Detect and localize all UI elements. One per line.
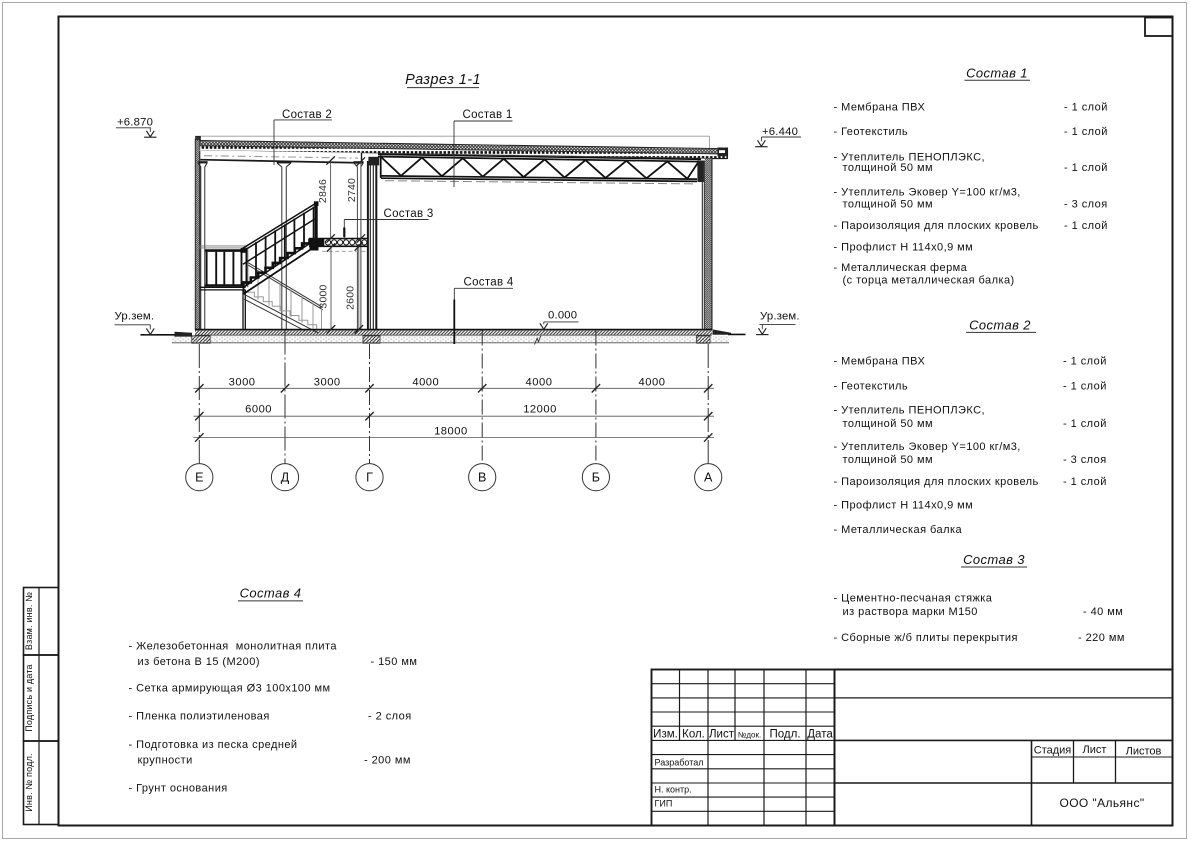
svg-text:(с торца металлическая балка): (с торца металлическая балка): [843, 275, 1015, 287]
svg-text:№док.: №док.: [738, 731, 761, 740]
svg-text:- Металлическая балка: - Металлическая балка: [834, 524, 963, 536]
svg-text:0.000: 0.000: [548, 310, 577, 322]
svg-text:3000: 3000: [317, 284, 329, 308]
svg-text:Инв. № подл.: Инв. № подл.: [24, 753, 34, 811]
svg-text:- Грунт основания: - Грунт основания: [129, 783, 228, 795]
svg-text:Ур.зем.: Ур.зем.: [760, 311, 800, 323]
svg-text:Изм.: Изм.: [653, 729, 678, 741]
svg-text:12000: 12000: [523, 404, 557, 416]
svg-text:Лист: Лист: [709, 729, 735, 741]
svg-text:Состав 4: Состав 4: [240, 586, 302, 601]
svg-text:18000: 18000: [434, 426, 468, 438]
svg-text:- 3 слоя: - 3 слоя: [1064, 198, 1108, 210]
svg-text:- Сборные ж/б плиты перекрытия: - Сборные ж/б плиты перекрытия: [834, 632, 1018, 644]
svg-text:Стадия: Стадия: [1034, 745, 1072, 757]
svg-text:- Утеплитель Эковер Y=100 кг/м: - Утеплитель Эковер Y=100 кг/м3,: [834, 187, 1021, 199]
svg-text:- 1 слой: - 1 слой: [1064, 220, 1108, 232]
svg-text:- 1 слой: - 1 слой: [1063, 418, 1107, 430]
svg-text:Состав 1: Состав 1: [463, 109, 513, 121]
svg-text:Состав 2: Состав 2: [969, 318, 1031, 333]
svg-text:Кол.: Кол.: [682, 729, 705, 741]
svg-text:В: В: [478, 471, 486, 485]
svg-text:+6.440: +6.440: [762, 126, 798, 138]
svg-text:Дата: Дата: [807, 729, 833, 741]
svg-text:Н. контр.: Н. контр.: [655, 785, 692, 795]
svg-text:- 1 слой: - 1 слой: [1064, 162, 1108, 174]
svg-text:- Сетка армирующая Ø3 100х100: - Сетка армирующая Ø3 100х100 мм: [129, 683, 331, 695]
svg-text:- 1 слой: - 1 слой: [1063, 476, 1107, 488]
svg-text:Разрез 1-1: Разрез 1-1: [405, 72, 481, 88]
svg-text:Ур.зем.: Ур.зем.: [115, 311, 155, 323]
svg-text:+6.870: +6.870: [117, 117, 153, 129]
svg-text:- Утеплитель Эковер Y=100 кг/м: - Утеплитель Эковер Y=100 кг/м3,: [834, 441, 1021, 453]
svg-text:3000: 3000: [314, 376, 341, 388]
svg-text:Взам. инв. №: Взам. инв. №: [24, 592, 34, 650]
svg-text:- 2 слоя: - 2 слоя: [368, 711, 412, 723]
svg-text:- 3 слоя: - 3 слоя: [1063, 454, 1107, 466]
svg-text:- Геотекстиль: - Геотекстиль: [834, 126, 909, 138]
svg-text:- Утеплитель ПЕНОПЛЭКС,: - Утеплитель ПЕНОПЛЭКС,: [834, 405, 986, 417]
svg-text:Подпись и дата: Подпись и дата: [24, 664, 34, 732]
svg-text:2846: 2846: [317, 179, 329, 203]
svg-text:Листов: Листов: [1126, 746, 1162, 758]
svg-text:- Железобетонная монолитная п: - Железобетонная монолитная плита: [129, 641, 338, 653]
svg-text:Состав 3: Состав 3: [384, 208, 434, 220]
svg-text:ООО "Альянс": ООО "Альянс": [1059, 796, 1144, 810]
svg-text:из раствора марки М150: из раствора марки М150: [843, 606, 978, 618]
svg-text:- 1 слой: - 1 слой: [1063, 381, 1107, 393]
svg-text:- Пленка полиэтиленовая: - Пленка полиэтиленовая: [129, 711, 270, 723]
svg-text:4000: 4000: [526, 376, 553, 388]
svg-text:толщиной 50 мм: толщиной 50 мм: [843, 162, 934, 174]
svg-text:Состав 4: Состав 4: [464, 276, 514, 288]
svg-text:толщиной 50 мм: толщиной 50 мм: [843, 418, 934, 430]
svg-text:- 220 мм: - 220 мм: [1078, 632, 1125, 644]
svg-text:из бетона В 15 (М200): из бетона В 15 (М200): [138, 656, 260, 668]
svg-text:- 1 слой: - 1 слой: [1064, 101, 1108, 113]
svg-text:- 150 мм: - 150 мм: [371, 656, 418, 668]
svg-text:Состав 2: Состав 2: [282, 109, 332, 121]
svg-text:- Металлическая ферма: - Металлическая ферма: [834, 262, 968, 274]
svg-text:Состав 1: Состав 1: [966, 66, 1028, 81]
svg-text:Подл.: Подл.: [769, 729, 800, 741]
svg-text:толщиной 50 мм: толщиной 50 мм: [843, 454, 934, 466]
svg-text:Д: Д: [281, 471, 290, 485]
svg-text:толщиной 50 мм: толщиной 50 мм: [843, 198, 934, 210]
svg-text:- Мембрана ПВХ: - Мембрана ПВХ: [834, 101, 926, 113]
svg-text:4000: 4000: [412, 376, 439, 388]
svg-text:Б: Б: [592, 471, 600, 485]
svg-text:- Пароизоляция для плоских кро: - Пароизоляция для плоских кровель: [834, 220, 1039, 232]
svg-text:- Подготовка из песка средней: - Подготовка из песка средней: [129, 739, 298, 751]
svg-text:- 1 слой: - 1 слой: [1063, 356, 1107, 368]
svg-text:- Профлист Н 114х0,9 мм: - Профлист Н 114х0,9 мм: [834, 500, 974, 512]
svg-text:- 200 мм: - 200 мм: [364, 754, 411, 766]
svg-text:Е: Е: [195, 471, 203, 485]
svg-text:- Пароизоляция для плоских кро: - Пароизоляция для плоских кровель: [834, 476, 1039, 488]
svg-text:6000: 6000: [245, 404, 272, 416]
svg-text:А: А: [704, 471, 713, 485]
svg-text:4000: 4000: [639, 376, 666, 388]
svg-text:- Геотекстиль: - Геотекстиль: [834, 381, 909, 393]
svg-text:Разработал: Разработал: [655, 758, 704, 768]
svg-text:3000: 3000: [229, 376, 256, 388]
svg-text:- Мембрана ПВХ: - Мембрана ПВХ: [834, 356, 926, 368]
svg-text:- 1 слой: - 1 слой: [1064, 126, 1108, 138]
svg-text:- 40 мм: - 40 мм: [1083, 606, 1123, 618]
svg-text:2600: 2600: [344, 286, 356, 310]
svg-text:Г: Г: [366, 471, 373, 485]
svg-text:- Профлист Н 114х0,9 мм: - Профлист Н 114х0,9 мм: [834, 242, 974, 254]
svg-text:крупности: крупности: [138, 754, 193, 766]
svg-text:ГИП: ГИП: [655, 799, 673, 809]
svg-text:2740: 2740: [346, 178, 358, 202]
svg-text:Лист: Лист: [1083, 744, 1107, 756]
svg-text:- Цементно-песчаная стяжка: - Цементно-песчаная стяжка: [834, 593, 993, 605]
svg-text:Состав 3: Состав 3: [963, 552, 1025, 567]
